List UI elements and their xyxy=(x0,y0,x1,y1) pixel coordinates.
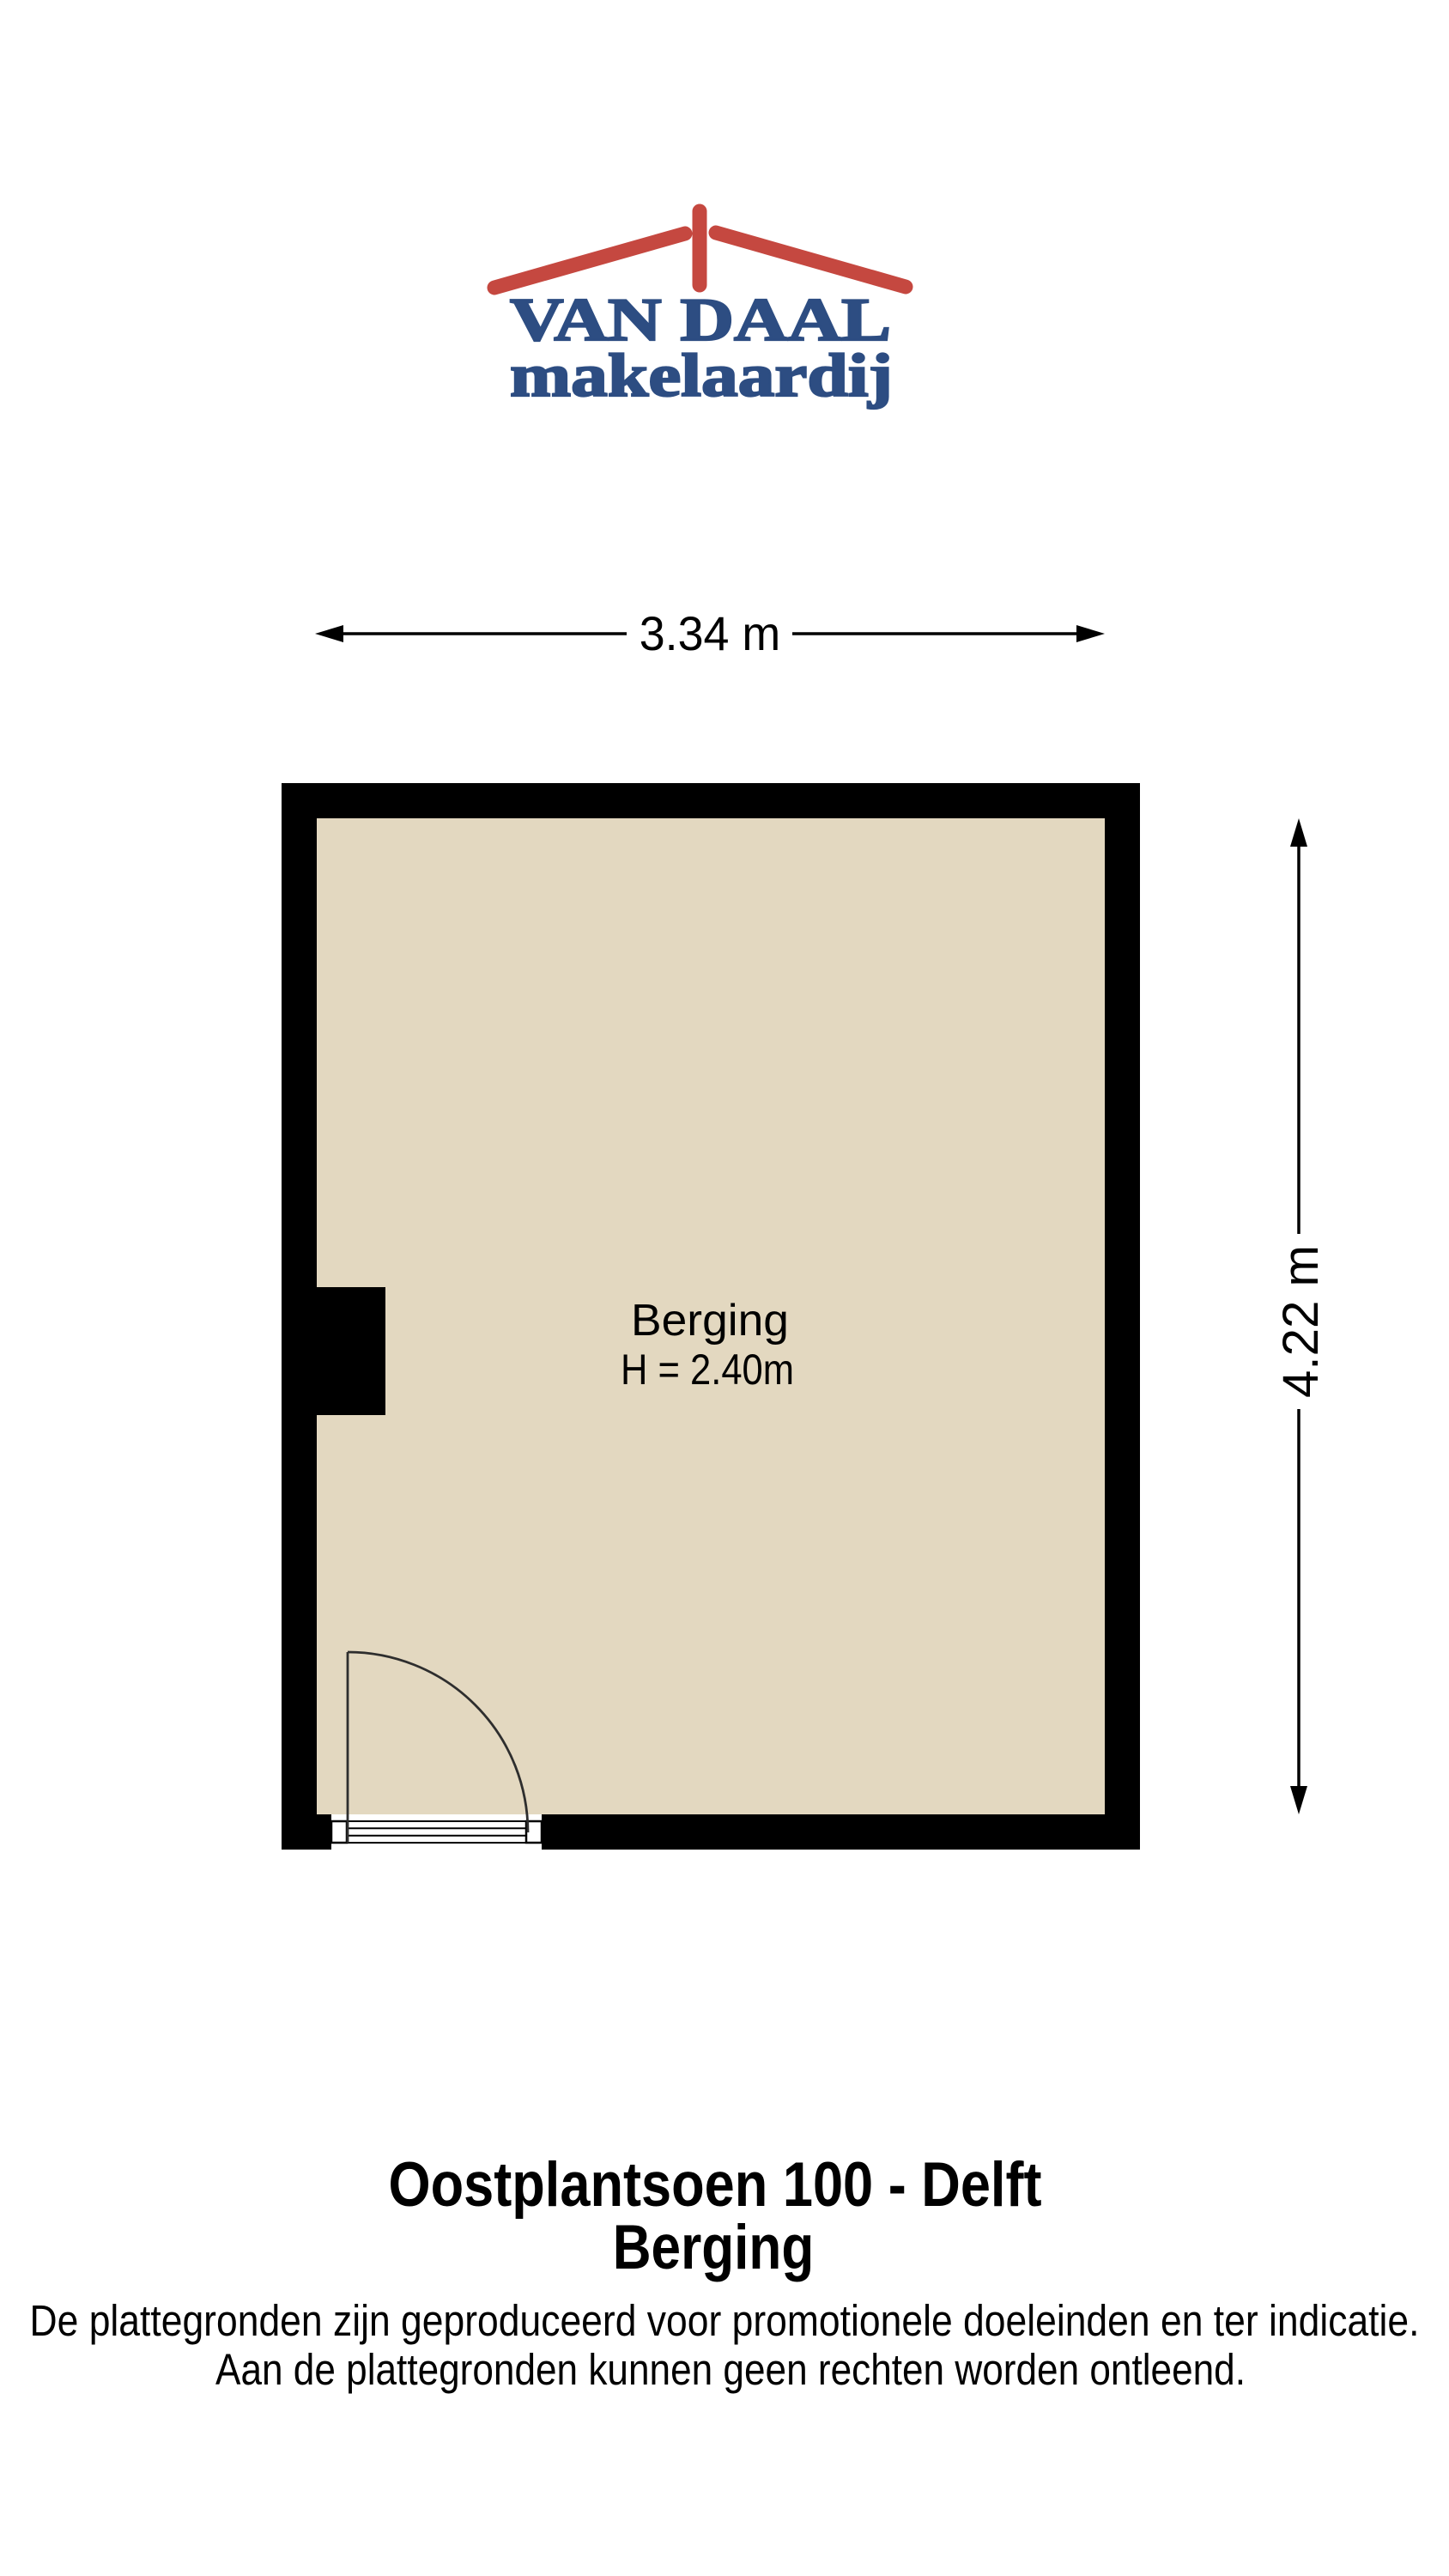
svg-text:H = 2.40m: H = 2.40m xyxy=(621,1346,794,1394)
svg-text:3.34 m: 3.34 m xyxy=(640,606,781,660)
svg-text:Berging: Berging xyxy=(631,1296,789,1346)
svg-text:Aan de plattegronden kunnen ge: Aan de plattegronden kunnen geen rechten… xyxy=(215,2345,1246,2394)
svg-text:Oostplantsoen 100 - Delft: Oostplantsoen 100 - Delft xyxy=(389,2150,1042,2220)
svg-text:Berging: Berging xyxy=(613,2213,815,2282)
svg-text:4.22 m: 4.22 m xyxy=(1273,1245,1329,1398)
svg-text:makelaardij: makelaardij xyxy=(510,343,893,410)
svg-text:De plattegronden zijn geproduc: De plattegronden zijn geproduceerd voor … xyxy=(30,2296,1420,2345)
